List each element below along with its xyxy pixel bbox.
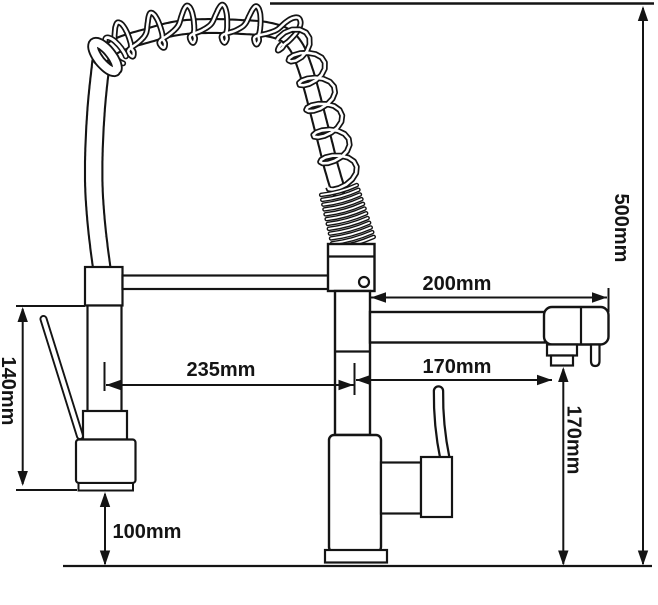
- svg-text:170mm: 170mm: [563, 406, 585, 475]
- svg-text:235mm: 235mm: [187, 359, 256, 381]
- svg-text:100mm: 100mm: [113, 521, 182, 543]
- svg-text:170mm: 170mm: [423, 356, 492, 378]
- svg-text:500mm: 500mm: [610, 194, 632, 263]
- svg-text:140mm: 140mm: [0, 357, 19, 426]
- svg-text:200mm: 200mm: [423, 273, 492, 295]
